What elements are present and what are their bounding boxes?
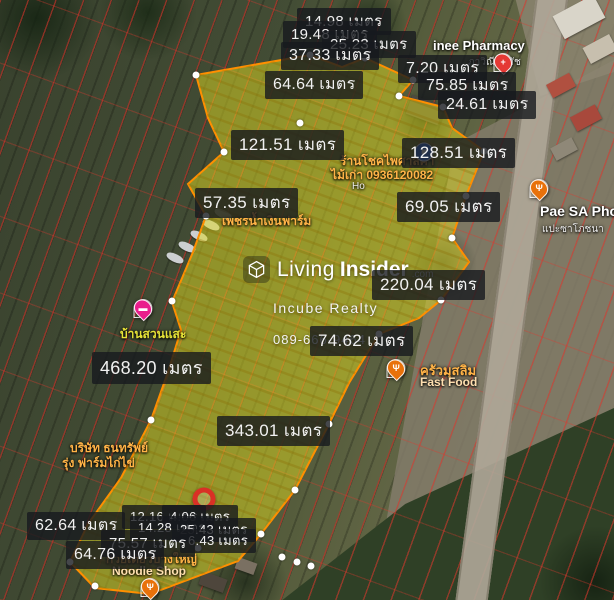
measurement-label: 74.62 เมตร xyxy=(310,326,413,356)
measurement-label: 64.76 เมตร xyxy=(66,541,164,569)
measurement-label: 69.05 เมตร xyxy=(397,192,500,222)
measurement-label: 121.51 เมตร xyxy=(231,130,344,160)
measurement-label: 220.04 เมตร xyxy=(372,270,485,300)
measurement-label: 343.01 เมตร xyxy=(217,416,330,446)
measurement-label: 128.51 เมตร xyxy=(402,138,515,168)
measurement-layer: 14.98 เมตร19.48 เมตร25.23 เมตร37.33 เมตร… xyxy=(0,0,614,600)
measurement-label: 24.61 เมตร xyxy=(438,91,536,119)
measurement-label: 468.20 เมตร xyxy=(92,352,211,384)
satellite-map[interactable]: LivingInsider.com Incube Realty 089-666-… xyxy=(0,0,614,600)
measurement-label: 57.35 เมตร xyxy=(195,188,298,218)
measurement-label: 37.33 เมตร xyxy=(281,42,379,70)
measurement-label: 64.64 เมตร xyxy=(265,71,363,99)
